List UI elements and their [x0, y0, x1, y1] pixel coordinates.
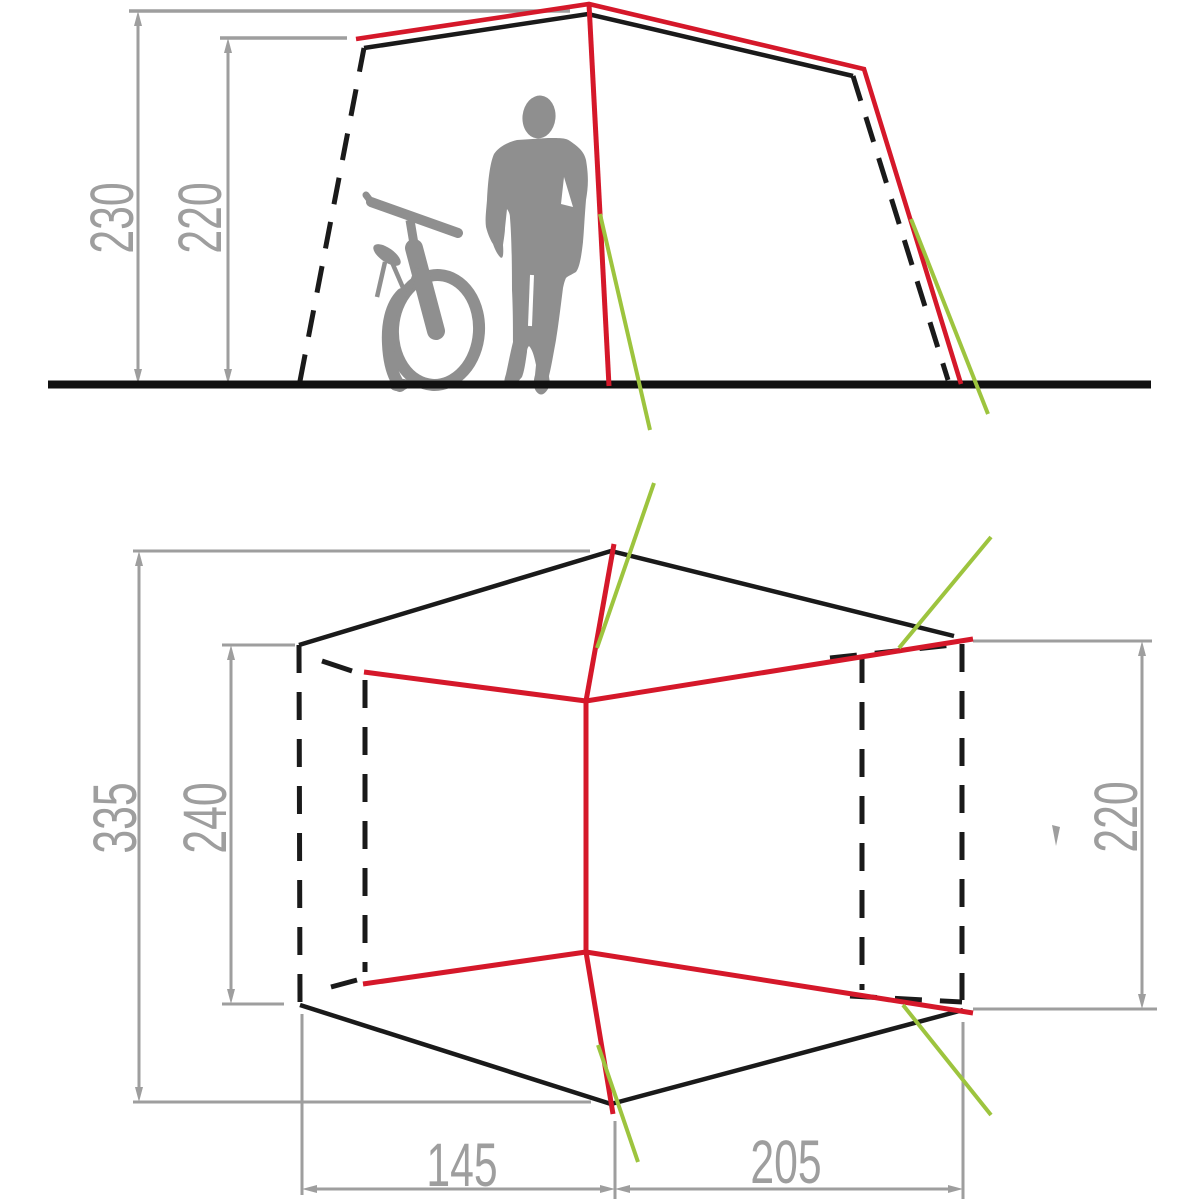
svg-text:205: 205: [750, 1129, 821, 1197]
svg-text:230: 230: [79, 182, 147, 253]
svg-text:220: 220: [167, 182, 235, 253]
svg-text:335: 335: [82, 782, 150, 853]
svg-text:240: 240: [172, 782, 240, 853]
svg-text:220: 220: [1083, 781, 1151, 852]
svg-text:145: 145: [426, 1132, 497, 1200]
